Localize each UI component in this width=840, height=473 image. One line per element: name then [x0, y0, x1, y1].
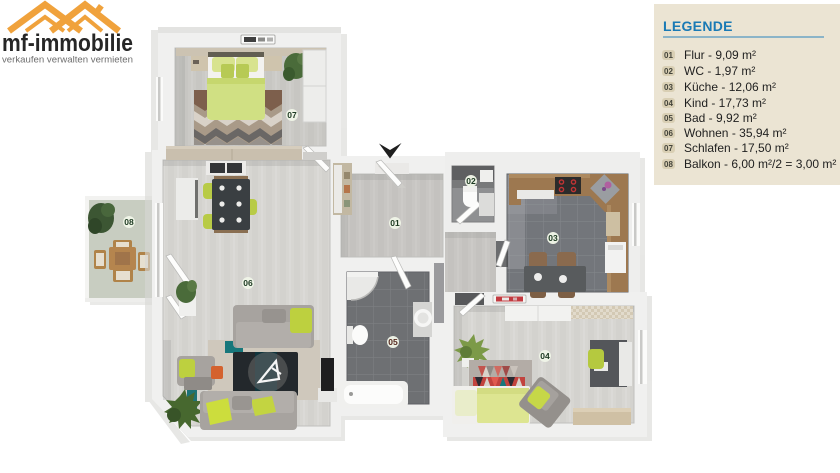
- svg-text:03: 03: [548, 233, 558, 243]
- svg-text:Wohnen - 35,94 m²: Wohnen - 35,94 m²: [684, 126, 787, 140]
- svg-text:06: 06: [664, 129, 673, 138]
- svg-text:07: 07: [664, 144, 673, 153]
- svg-text:Schlafen - 17,50 m²: Schlafen - 17,50 m²: [684, 141, 789, 155]
- svg-text:WC - 1,97 m²: WC - 1,97 m²: [684, 64, 755, 78]
- svg-text:06: 06: [243, 278, 253, 288]
- svg-text:07: 07: [287, 110, 297, 120]
- svg-text:08: 08: [124, 217, 134, 227]
- svg-text:Kind - 17,73 m²: Kind - 17,73 m²: [684, 96, 766, 110]
- svg-text:04: 04: [540, 351, 550, 361]
- svg-text:04: 04: [664, 99, 673, 108]
- svg-text:Flur - 9,09 m²: Flur - 9,09 m²: [684, 48, 756, 62]
- svg-text:Küche - 12,06 m²: Küche - 12,06 m²: [684, 80, 776, 94]
- svg-text:Balkon - 6,00 m²/2 = 3,00 m²: Balkon - 6,00 m²/2 = 3,00 m²: [684, 157, 836, 171]
- svg-text:01: 01: [664, 51, 673, 60]
- svg-text:01: 01: [390, 218, 400, 228]
- svg-text:05: 05: [664, 114, 673, 123]
- svg-text:03: 03: [664, 83, 673, 92]
- svg-text:02: 02: [664, 67, 673, 76]
- svg-text:Bad - 9,92 m²: Bad - 9,92 m²: [684, 111, 757, 125]
- svg-text:02: 02: [466, 176, 476, 186]
- svg-text:mf-immobilie: mf-immobilie: [2, 30, 133, 57]
- svg-text:LEGENDE: LEGENDE: [663, 18, 733, 34]
- svg-text:verkaufen verwalten vermieten: verkaufen verwalten vermieten: [2, 55, 133, 65]
- svg-text:08: 08: [664, 160, 673, 169]
- svg-text:05: 05: [388, 337, 398, 347]
